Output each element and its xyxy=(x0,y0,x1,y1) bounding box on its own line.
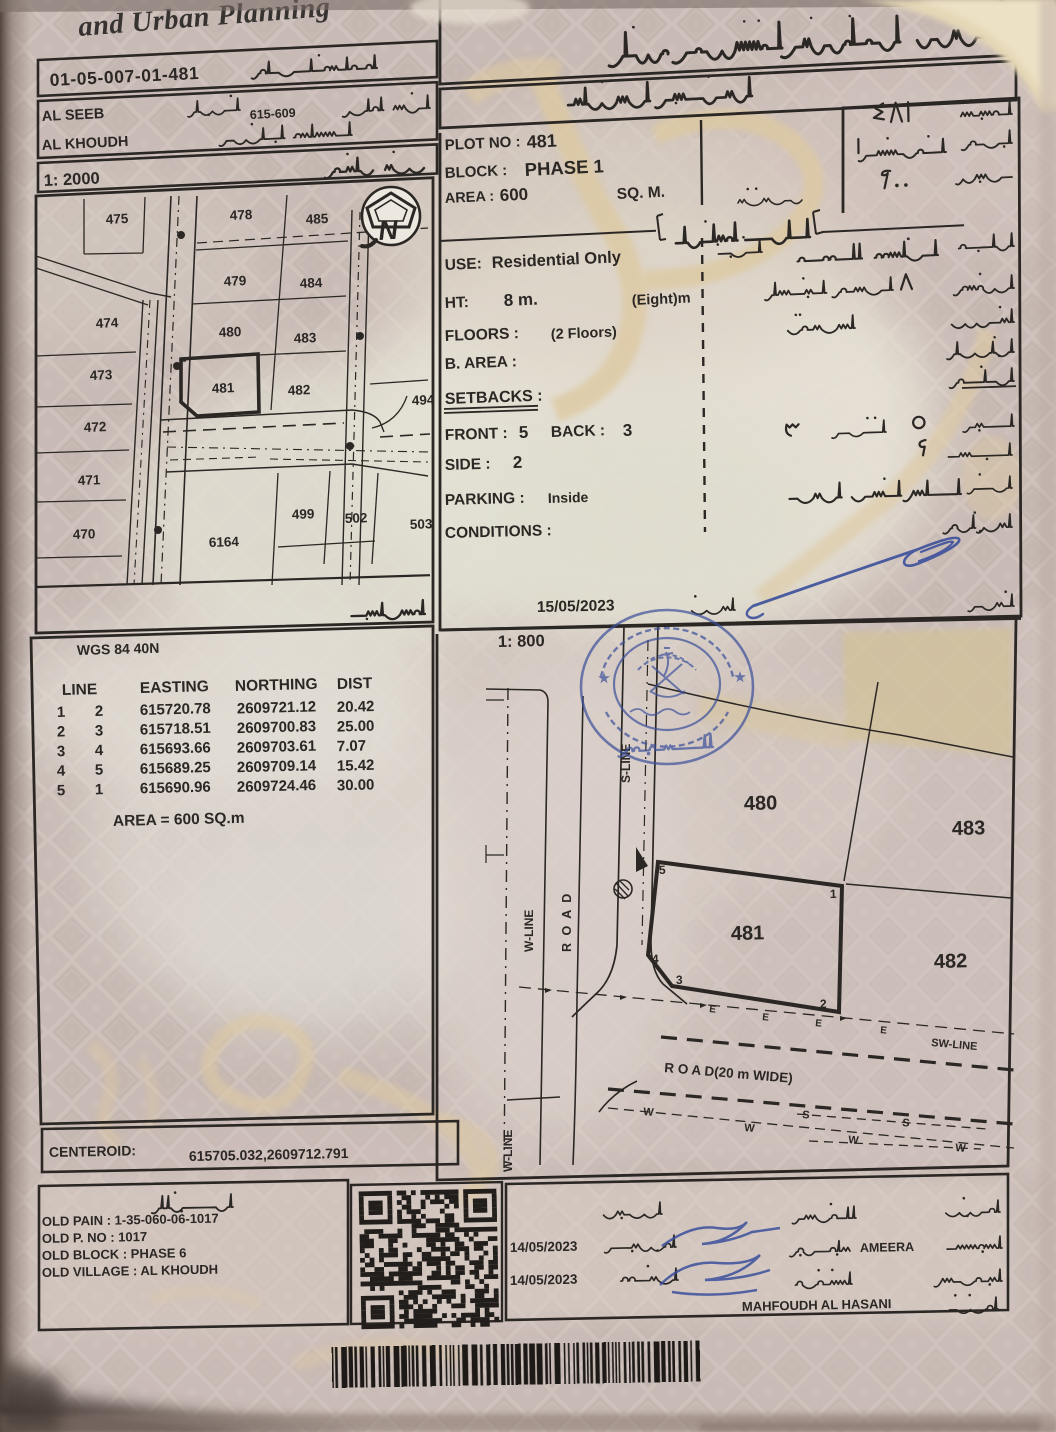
svg-text:AREA :: AREA : xyxy=(444,189,494,207)
svg-text:(Eight)m: (Eight)m xyxy=(631,291,690,309)
svg-text:4: 4 xyxy=(652,952,659,966)
svg-text:(2 Floors): (2 Floors) xyxy=(551,324,618,343)
svg-text:30.00: 30.00 xyxy=(337,776,375,794)
svg-text:470: 470 xyxy=(73,526,96,542)
svg-text:2: 2 xyxy=(57,723,66,740)
svg-text:Inside: Inside xyxy=(548,489,589,506)
svg-text:480: 480 xyxy=(218,324,241,340)
svg-text:AREA = 600 SQ.m: AREA = 600 SQ.m xyxy=(113,810,245,830)
svg-text:600: 600 xyxy=(499,185,528,205)
svg-text:PHASE 1: PHASE 1 xyxy=(524,155,604,180)
svg-text:480: 480 xyxy=(744,792,778,815)
svg-text:494: 494 xyxy=(412,392,436,408)
svg-text:CONDITIONS :: CONDITIONS : xyxy=(445,522,552,542)
svg-text:HT:: HT: xyxy=(444,294,469,312)
svg-text:499: 499 xyxy=(292,506,315,522)
svg-text:14/05/2023: 14/05/2023 xyxy=(510,1239,578,1255)
svg-text:BACK :: BACK : xyxy=(551,422,606,441)
svg-text:W-LINE: W-LINE xyxy=(522,910,536,952)
svg-text:S: S xyxy=(802,1109,810,1122)
svg-text:SIDE :: SIDE : xyxy=(445,456,491,474)
svg-text:W-LINE: W-LINE xyxy=(501,1130,515,1172)
svg-text:B. AREA :: B. AREA : xyxy=(445,353,518,373)
svg-text:615720.78: 615720.78 xyxy=(140,700,211,719)
svg-text:479: 479 xyxy=(223,273,246,289)
svg-text:615705.032,2609712.791: 615705.032,2609712.791 xyxy=(189,1145,349,1164)
svg-text:BLOCK :: BLOCK : xyxy=(444,162,507,182)
svg-text:615690.96: 615690.96 xyxy=(140,779,211,798)
svg-text:4: 4 xyxy=(95,742,104,759)
svg-text:6164: 6164 xyxy=(209,534,240,550)
svg-text:W: W xyxy=(848,1134,860,1147)
svg-text:14/05/2023: 14/05/2023 xyxy=(510,1272,578,1288)
svg-text:2: 2 xyxy=(820,997,827,1011)
svg-text:S-LINE: S-LINE xyxy=(619,744,633,783)
svg-text:615689.25: 615689.25 xyxy=(140,759,211,778)
svg-text:7.07: 7.07 xyxy=(337,737,367,755)
svg-text:1: 800: 1: 800 xyxy=(498,632,545,651)
svg-text:5: 5 xyxy=(659,863,666,877)
svg-text:NORTHING: NORTHING xyxy=(235,676,318,695)
svg-text:W: W xyxy=(643,1106,655,1119)
svg-text:FLOORS :: FLOORS : xyxy=(444,325,519,345)
svg-text:482: 482 xyxy=(934,950,968,973)
svg-text:2: 2 xyxy=(95,703,104,720)
svg-text:481: 481 xyxy=(526,131,557,152)
svg-text:502: 502 xyxy=(345,510,368,526)
svg-text:2609700.83: 2609700.83 xyxy=(237,718,317,737)
svg-text:15/05/2023: 15/05/2023 xyxy=(537,597,615,616)
svg-text:5: 5 xyxy=(57,782,66,799)
svg-text:E: E xyxy=(709,1004,717,1016)
svg-text:475: 475 xyxy=(105,211,129,227)
svg-text:R O A D: R O A D xyxy=(560,892,574,952)
svg-text:483: 483 xyxy=(293,330,317,346)
svg-text:482: 482 xyxy=(288,382,311,398)
svg-text:2609709.14: 2609709.14 xyxy=(237,757,317,776)
svg-text:EASTING: EASTING xyxy=(140,678,209,697)
svg-text:25.00: 25.00 xyxy=(337,718,375,736)
svg-text:503: 503 xyxy=(410,516,433,532)
svg-text:AL SEEB: AL SEEB xyxy=(41,106,104,125)
svg-text:2609703.61: 2609703.61 xyxy=(237,738,317,757)
svg-text:8 m.: 8 m. xyxy=(503,290,538,310)
svg-text:E: E xyxy=(815,1018,823,1030)
svg-text:SETBACKS :: SETBACKS : xyxy=(445,388,543,408)
svg-text:N: N xyxy=(377,215,399,246)
svg-text:5: 5 xyxy=(519,423,529,442)
svg-text:PARKING :: PARKING : xyxy=(445,490,525,509)
svg-text:E: E xyxy=(880,1025,888,1037)
svg-text:1: 1 xyxy=(95,781,104,798)
svg-text:471: 471 xyxy=(78,472,102,488)
svg-text:481: 481 xyxy=(212,380,236,396)
svg-text:CENTEROID:: CENTEROID: xyxy=(49,1142,136,1160)
svg-text:DIST: DIST xyxy=(337,675,373,693)
svg-text:LINE: LINE xyxy=(62,681,98,699)
svg-text:2609724.46: 2609724.46 xyxy=(237,777,317,796)
svg-text:3: 3 xyxy=(57,743,66,760)
svg-text:WGS 84 40N: WGS 84 40N xyxy=(77,640,160,658)
svg-text:OLD BLOCK : PHASE 6: OLD BLOCK : PHASE 6 xyxy=(42,1245,187,1263)
svg-text:USE:: USE: xyxy=(444,255,482,274)
svg-text:483: 483 xyxy=(952,817,986,840)
svg-text:474: 474 xyxy=(95,315,119,331)
svg-text:SQ. M.: SQ. M. xyxy=(616,184,665,203)
svg-text:615718.51: 615718.51 xyxy=(140,720,211,739)
svg-text:2609721.12: 2609721.12 xyxy=(237,698,317,717)
svg-text:20.42: 20.42 xyxy=(337,698,375,716)
svg-text:S: S xyxy=(902,1117,910,1130)
svg-text:15.42: 15.42 xyxy=(337,757,375,775)
svg-text:MAHFOUDH AL HASANI: MAHFOUDH AL HASANI xyxy=(742,1296,892,1314)
svg-text:2: 2 xyxy=(513,453,523,472)
svg-text:3: 3 xyxy=(676,973,683,987)
svg-text:1: 1 xyxy=(57,704,66,721)
svg-text:1: 2000: 1: 2000 xyxy=(43,169,100,190)
svg-text:W: W xyxy=(955,1142,967,1155)
svg-text:478: 478 xyxy=(229,207,253,223)
svg-text:W: W xyxy=(744,1122,756,1135)
svg-text:472: 472 xyxy=(84,419,107,435)
svg-text:3: 3 xyxy=(623,421,633,440)
svg-text:OLD P. NO : 1017: OLD P. NO : 1017 xyxy=(42,1229,148,1246)
svg-text:1: 1 xyxy=(830,887,837,901)
svg-text:615693.66: 615693.66 xyxy=(140,739,211,758)
svg-text:3: 3 xyxy=(95,722,104,739)
svg-text:E: E xyxy=(762,1012,770,1024)
svg-text:481: 481 xyxy=(731,922,765,945)
svg-text:5: 5 xyxy=(95,762,104,779)
svg-text:473: 473 xyxy=(90,367,114,383)
svg-text:FRONT :: FRONT : xyxy=(445,425,508,444)
svg-text:AMEERA: AMEERA xyxy=(860,1240,914,1255)
svg-text:4: 4 xyxy=(57,763,66,780)
svg-text:484: 484 xyxy=(299,275,323,291)
svg-text:485: 485 xyxy=(305,211,329,227)
svg-text:615-609: 615-609 xyxy=(249,106,296,122)
